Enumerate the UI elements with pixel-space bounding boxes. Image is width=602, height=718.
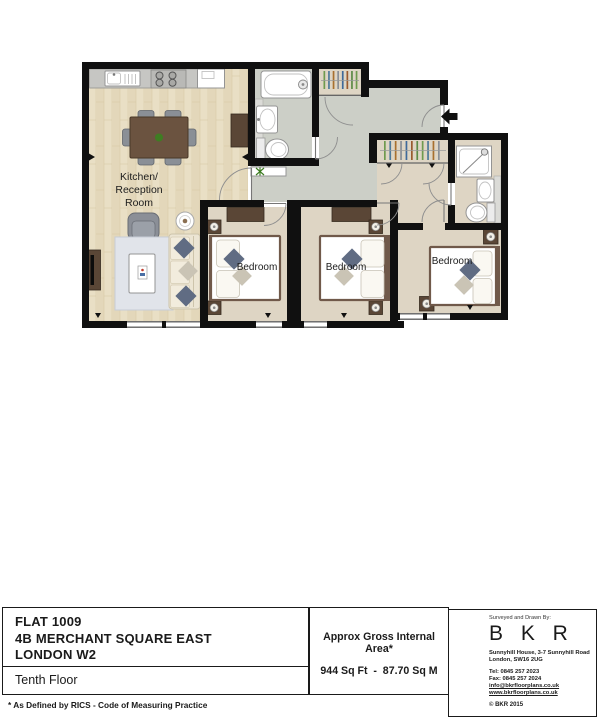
- sink-icon: [477, 179, 494, 202]
- nightstand-lamp-icon: [208, 220, 222, 234]
- window: [166, 322, 200, 328]
- shower-icon: [457, 146, 492, 177]
- city-line: LONDON W2: [15, 647, 308, 664]
- coffee-table: [129, 254, 155, 293]
- nightstand-lamp-icon: [208, 301, 222, 315]
- kitchen-label-line2: Reception: [115, 184, 162, 196]
- window: [400, 314, 423, 320]
- dresser: [332, 208, 371, 222]
- surveyor-fax: Fax: 0845 257 2024: [489, 676, 596, 683]
- kitchen-sink-icon: [105, 71, 140, 86]
- surveyed-by-label: Surveyed and Drawn By:: [489, 615, 596, 621]
- armchair: [128, 213, 159, 240]
- surveyor-address-line2: London, SW16 2UG: [489, 657, 596, 664]
- kitchen-appliance: [198, 69, 225, 88]
- tv-unit: [89, 250, 101, 290]
- side-table: [176, 212, 194, 230]
- dresser: [227, 208, 264, 222]
- toilet-icon: [466, 203, 495, 222]
- surveyor-logo: B K R: [489, 622, 596, 646]
- bedroom2-label: Bedroom: [326, 262, 367, 273]
- double-bed: [430, 246, 500, 306]
- kitchen-cabinet: [231, 114, 248, 147]
- floor-level: Tenth Floor: [15, 673, 78, 687]
- nightstand-lamp-icon: [369, 301, 383, 315]
- dining-table: [123, 111, 197, 166]
- window: [304, 322, 327, 328]
- bedroom1-label: Bedroom: [237, 262, 278, 273]
- floor-plan: Kitchen/ Reception Room Bedroom Bedroom …: [0, 0, 602, 600]
- address-line: 4B MERCHANT SQUARE EAST: [15, 631, 308, 648]
- surveyor-address-line1: Sunnyhill House, 3-7 Sunnyhill Road: [489, 650, 596, 657]
- hob-icon: [151, 70, 186, 88]
- surveyor-website[interactable]: www.bkrfloorplans.co.uk: [489, 690, 596, 697]
- kitchen-label-line1: Kitchen/: [120, 171, 158, 183]
- surveyor-tel: Tel: 0845 257 2023: [489, 669, 596, 676]
- window: [127, 322, 162, 328]
- area-info-box: Approx Gross Internal Area* 944 Sq Ft - …: [309, 607, 449, 695]
- disclaimer: Illustration For Identification Purposes…: [168, 698, 368, 718]
- nightstand-lamp-icon: [369, 220, 383, 234]
- area-title: Approx Gross Internal Area*: [310, 631, 448, 655]
- window: [256, 322, 282, 328]
- surveyor-email[interactable]: info@bkrfloorplans.co.uk: [489, 683, 596, 690]
- floorplan-sheet: Kitchen/ Reception Room Bedroom Bedroom …: [0, 0, 602, 718]
- nightstand-lamp-icon: [484, 230, 499, 245]
- flat-number: FLAT 1009: [15, 614, 308, 631]
- surveyor-box: Surveyed and Drawn By: B K R Sunnyhill H…: [448, 609, 597, 717]
- plant-shelf: [251, 167, 286, 176]
- sink-icon: [257, 106, 278, 133]
- divider: [3, 666, 308, 667]
- sofa: [169, 234, 200, 309]
- window: [427, 314, 450, 320]
- closet1-floor: [319, 67, 361, 95]
- copyright: © BKR 2015: [489, 702, 596, 708]
- bathtub-icon: [261, 71, 311, 98]
- area-value: 944 Sq Ft - 87.70 Sq M: [310, 665, 448, 677]
- bedroom3-label: Bedroom: [432, 256, 473, 267]
- kitchen-label-line3: Room: [125, 197, 153, 209]
- toilet-icon: [257, 138, 289, 161]
- property-info-box: FLAT 1009 4B MERCHANT SQUARE EAST LONDON…: [2, 607, 309, 695]
